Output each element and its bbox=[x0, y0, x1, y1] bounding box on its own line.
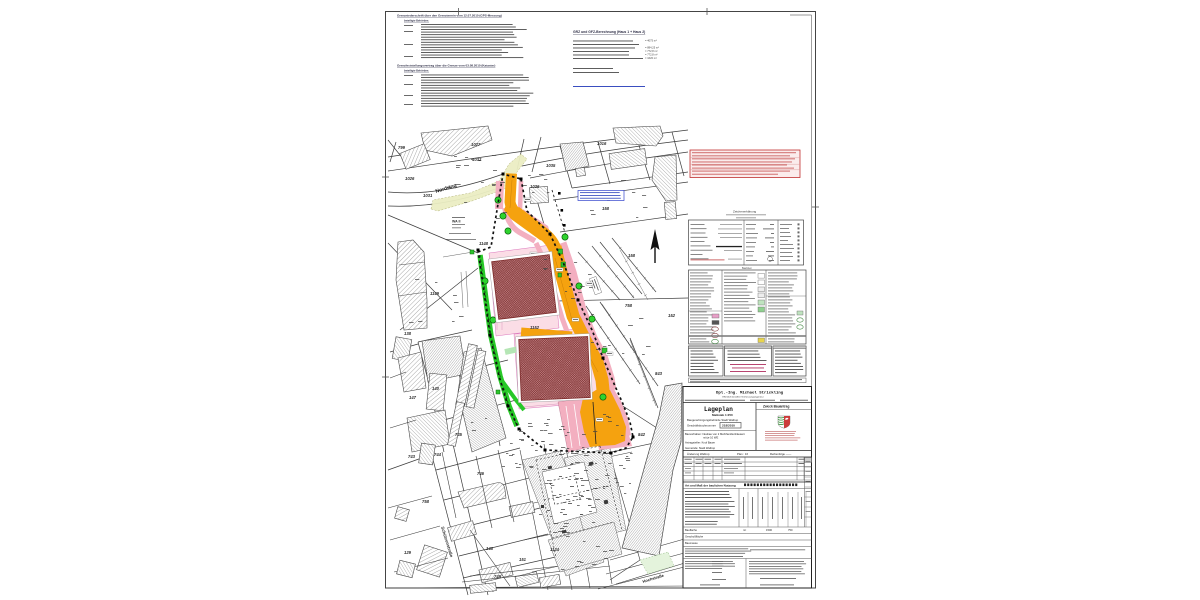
svg-text:m²: m² bbox=[743, 529, 746, 532]
svg-text:158: 158 bbox=[602, 206, 610, 211]
svg-text:749: 749 bbox=[494, 574, 502, 579]
svg-text:1148: 1148 bbox=[479, 241, 489, 246]
svg-text:746: 746 bbox=[477, 471, 485, 476]
svg-text:Dpl.-Ing. Michael Strickling: Dpl.-Ing. Michael Strickling bbox=[716, 391, 784, 396]
svg-text:843: 843 bbox=[655, 371, 663, 376]
svg-text:744: 744 bbox=[434, 452, 442, 457]
svg-text:Plan : 16: Plan : 16 bbox=[737, 452, 748, 456]
svg-text:758: 758 bbox=[625, 303, 633, 308]
svg-text:Zeichenerklärung: Zeichenerklärung bbox=[733, 210, 757, 214]
svg-text:1031: 1031 bbox=[423, 193, 433, 198]
svg-text:152: 152 bbox=[668, 313, 676, 318]
svg-text:1124: 1124 bbox=[550, 547, 560, 552]
svg-text:GRZ und GFZ-Berechnung (Haus 1: GRZ und GFZ-Berechnung (Haus 1 + Haus 2) bbox=[573, 30, 645, 34]
svg-text:Baumasse: Baumasse bbox=[685, 541, 698, 545]
svg-text:Änderung Waltrop: Änderung Waltrop bbox=[687, 452, 710, 456]
svg-text:842: 842 bbox=[638, 432, 646, 437]
svg-text:Lageplan: Lageplan bbox=[704, 406, 733, 413]
svg-text:beteiligte Behörden:: beteiligte Behörden: bbox=[404, 19, 429, 23]
svg-text:Antragsteller: Knuf Bauer: Antragsteller: Knuf Bauer bbox=[685, 441, 715, 445]
svg-text:758: 758 bbox=[422, 499, 430, 504]
svg-text:Reihenfolge ——: Reihenfolge —— bbox=[770, 452, 792, 456]
svg-text:140: 140 bbox=[432, 386, 440, 391]
svg-text:1149: 1149 bbox=[430, 291, 440, 296]
svg-text:148: 148 bbox=[486, 546, 494, 551]
svg-text:750: 750 bbox=[788, 528, 793, 532]
svg-text:Maßstab 1:250: Maßstab 1:250 bbox=[712, 413, 733, 417]
svg-text:Geschoßfläche: Geschoßfläche bbox=[685, 535, 704, 539]
svg-text:129: 129 bbox=[404, 550, 412, 555]
svg-text:Art und Maß der baulichen Nutz: Art und Maß der baulichen Nutzung bbox=[685, 484, 736, 488]
svg-text:= 1620 m²: = 1620 m² bbox=[645, 56, 657, 60]
svg-text:1500: 1500 bbox=[766, 528, 772, 532]
svg-text:1026: 1026 bbox=[405, 176, 415, 181]
svg-text:Geschäftsbuchnummer: Geschäftsbuchnummer bbox=[687, 424, 716, 428]
svg-text:= 4075 m²: = 4075 m² bbox=[645, 39, 657, 43]
svg-text:743: 743 bbox=[408, 454, 416, 459]
svg-text:1035: 1035 bbox=[546, 163, 556, 168]
svg-text:Baulinien: Baulinien bbox=[742, 267, 753, 270]
svg-text:mit je 10 WE: mit je 10 WE bbox=[703, 435, 718, 439]
svg-text:WA II: WA II bbox=[452, 220, 460, 224]
svg-text:Zweck Bauantrag: Zweck Bauantrag bbox=[763, 405, 789, 409]
svg-text:1152: 1152 bbox=[530, 325, 540, 330]
svg-text:799: 799 bbox=[398, 145, 406, 150]
svg-text:138: 138 bbox=[404, 331, 412, 336]
svg-text:Grenzniederschrift über den Gr: Grenzniederschrift über den Grenztermin … bbox=[397, 14, 502, 18]
svg-text:147: 147 bbox=[409, 395, 417, 400]
svg-text:218/2010: 218/2010 bbox=[722, 424, 735, 428]
svg-text:1036: 1036 bbox=[530, 184, 540, 189]
svg-text:Grenzfeststellungsvertrag über: Grenzfeststellungsvertrag über die Grenz… bbox=[397, 64, 495, 68]
svg-text:745: 745 bbox=[455, 432, 463, 437]
svg-text:= 884,25 m²: = 884,25 m² bbox=[645, 46, 659, 50]
svg-text:Baugenehmigungsbehörde Stadt: Baugenehmigungsbehörde Stadt Waltrop bbox=[687, 418, 739, 422]
svg-text:Bauvorhaben: Neubau von 2 Meh: Bauvorhaben: Neubau von 2 Mehrfamilienhä… bbox=[685, 432, 746, 436]
svg-text:1027: 1027 bbox=[471, 142, 481, 147]
svg-text:Gemeinde: Stadt Waltrop: Gemeinde: Stadt Waltrop bbox=[685, 446, 716, 450]
svg-text:1016: 1016 bbox=[597, 141, 607, 146]
svg-text:Baufläche: Baufläche bbox=[685, 528, 697, 532]
svg-text:= 772,8 m²: = 772,8 m² bbox=[645, 49, 658, 53]
svg-text:Öffentlich bestellter Vermessu: Öffentlich bestellter Vermessungsingenie… bbox=[722, 396, 764, 399]
svg-text:= 772,8 m²: = 772,8 m² bbox=[645, 53, 658, 57]
svg-text:1032: 1032 bbox=[472, 157, 482, 162]
svg-text:151: 151 bbox=[519, 557, 527, 562]
svg-text:beteiligte Behörden:: beteiligte Behörden: bbox=[404, 69, 429, 73]
svg-text:158: 158 bbox=[628, 253, 636, 258]
